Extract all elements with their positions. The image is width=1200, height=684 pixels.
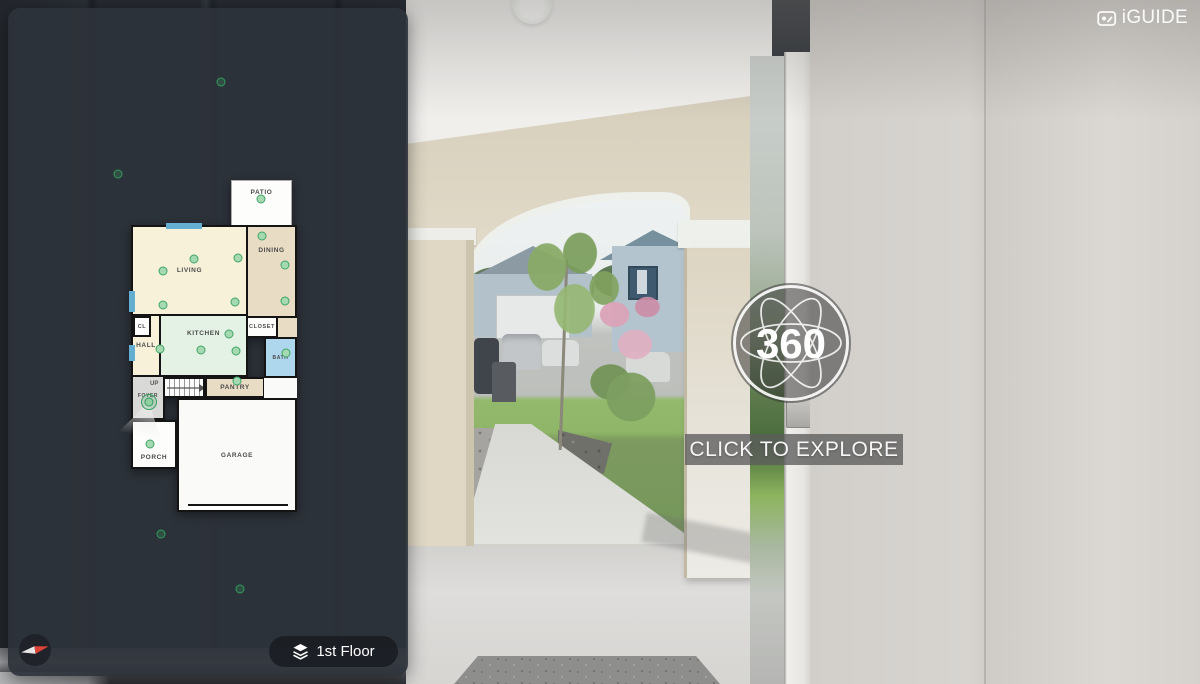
pano-marker[interactable] [197,346,206,355]
flowering-bush [590,292,672,442]
pano-marker[interactable] [231,298,240,307]
outdoor-pano-marker[interactable] [114,170,123,179]
pano-marker[interactable] [190,255,199,264]
column-trim [678,220,756,248]
badge-label: 360 [756,320,826,367]
pano-marker[interactable] [232,347,241,356]
pano-marker[interactable] [159,267,168,276]
outdoor-pano-marker[interactable] [236,585,245,594]
floor-selector-button[interactable]: 1st Floor [269,636,398,667]
current-position-marker[interactable] [141,394,157,410]
pano-marker[interactable] [156,345,165,354]
doormat [454,656,720,684]
compass[interactable] [18,633,52,667]
pano-marker[interactable] [234,254,243,263]
iguide-logo-text: iGUIDE [1122,7,1188,29]
pano-marker[interactable] [146,440,155,449]
iguide-logo-icon [1097,10,1117,27]
floorplan-panel [8,8,408,676]
layers-icon [292,643,309,660]
floor-selector-label: 1st Floor [316,643,374,660]
pano-marker[interactable] [282,349,291,358]
porch-pillar-left [406,240,474,546]
iguide-logo[interactable]: iGUIDE [1097,7,1188,29]
outdoor-pano-marker[interactable] [217,78,226,87]
pano-marker[interactable] [281,297,290,306]
cta-label: CLICK TO EXPLORE [689,438,898,462]
click-to-explore-button[interactable]: CLICK TO EXPLORE [685,434,903,465]
pano-marker[interactable] [233,377,242,386]
arch-opening-view [474,200,686,544]
pano-marker[interactable] [225,330,234,339]
trash-bin [492,362,516,402]
pano-marker[interactable] [281,261,290,270]
pano-marker[interactable] [159,301,168,310]
top-shadow-gradient [406,0,1200,120]
outdoor-pano-marker[interactable] [157,530,166,539]
360-badge[interactable]: 360 [729,281,853,405]
pano-marker[interactable] [258,232,267,241]
pano-marker[interactable] [257,195,266,204]
